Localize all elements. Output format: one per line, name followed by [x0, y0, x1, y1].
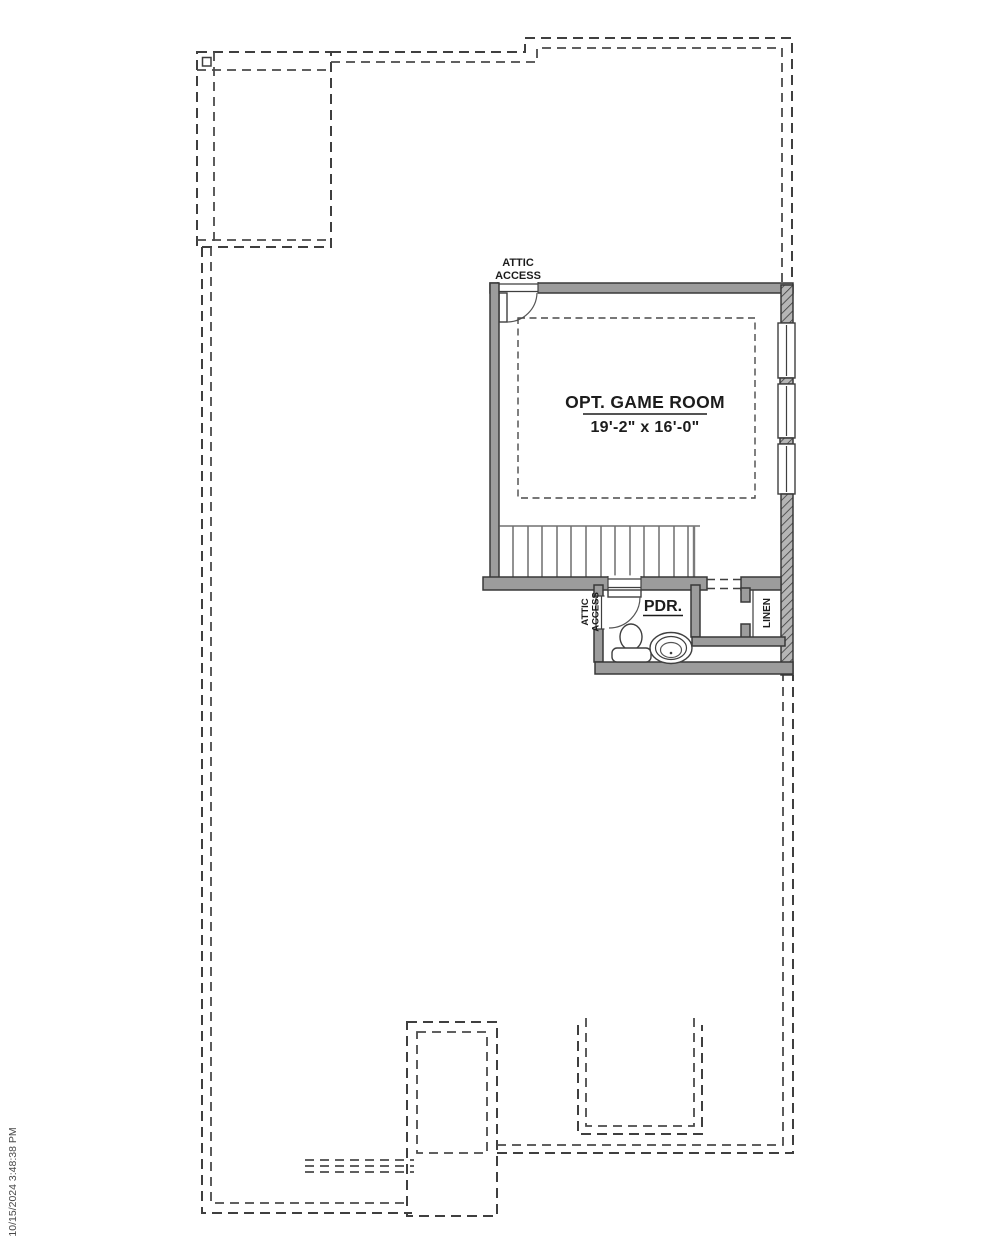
- powder-room-label: PDR.: [644, 598, 682, 615]
- toilet-tank: [612, 648, 651, 662]
- paper-background: [0, 0, 1000, 1250]
- bottom-wall: [595, 662, 793, 674]
- pdr-attic-access-line1: ATTIC: [580, 598, 591, 625]
- sink-drain: [670, 652, 673, 655]
- window-mullion-1: [780, 378, 793, 384]
- chase-top-wall: [692, 637, 785, 646]
- attic-access-door-leaf: [499, 293, 507, 322]
- sink-outer-rim: [650, 633, 692, 664]
- linen-label: LINEN: [762, 598, 773, 628]
- pdr-right-wall: [691, 585, 700, 637]
- floor-plan-page: ATTIC ACCESS OPT. GAME ROOM 19'-2" x 16'…: [0, 0, 1000, 1250]
- pdr-doorway-opening: [608, 575, 641, 591]
- game-room-left-wall: [490, 283, 499, 585]
- linen-door-jamb-bottom: [741, 624, 750, 638]
- window-mullion-2: [780, 438, 793, 444]
- game-room-dimensions-label: 19'-2" x 16'-0": [590, 419, 699, 436]
- floor-plan-drawing: ATTIC ACCESS OPT. GAME ROOM 19'-2" x 16'…: [0, 0, 1000, 1250]
- attic-access-label-line2: ACCESS: [495, 270, 541, 282]
- right-wall-hatched-bottom: [781, 494, 793, 675]
- linen-door-jamb-top: [741, 588, 750, 602]
- toilet-bowl: [620, 624, 642, 650]
- post-marker: [203, 58, 212, 67]
- game-room-name-label: OPT. GAME ROOM: [565, 392, 725, 412]
- attic-access-label-line1: ATTIC: [502, 257, 534, 269]
- print-timestamp: 10/15/2024 3:48:38 PM: [7, 1127, 19, 1236]
- right-wall-hatched-top: [781, 285, 793, 323]
- sink: [650, 633, 692, 664]
- pdr-attic-access-line2: ACCESS: [591, 592, 602, 632]
- pdr-door-leaf: [608, 590, 641, 597]
